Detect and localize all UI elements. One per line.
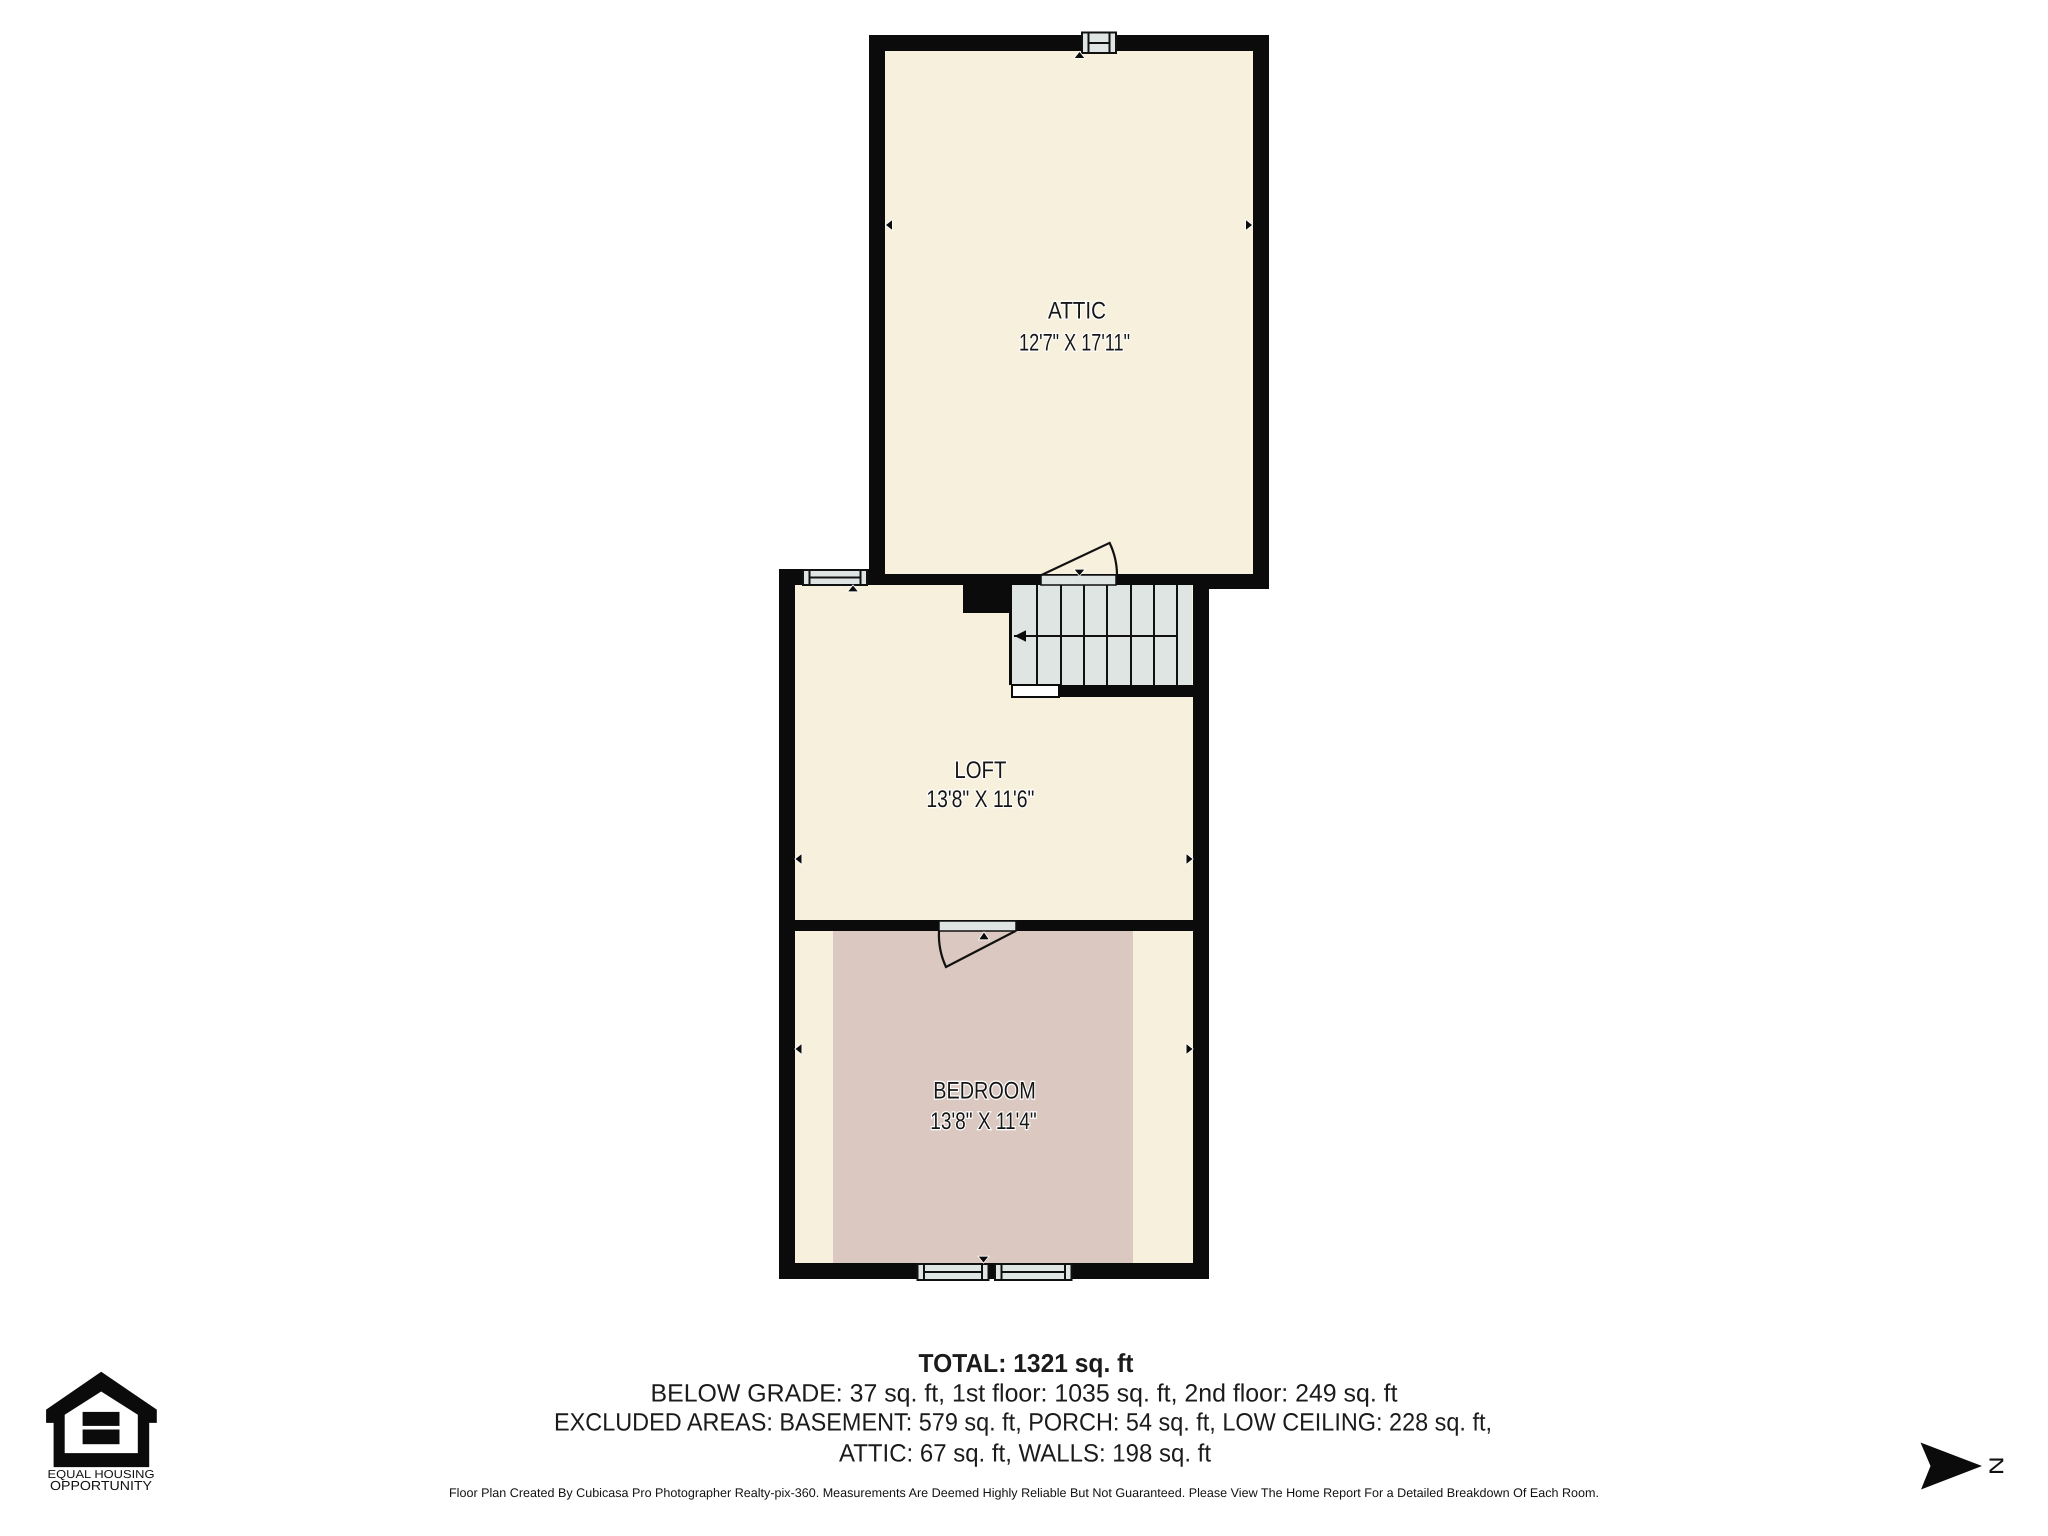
svg-text:OPPORTUNITY: OPPORTUNITY [50, 1478, 152, 1493]
svg-text:TOTAL: 1321 sq. ft: TOTAL: 1321 sq. ft [919, 1348, 1134, 1378]
svg-text:Floor Plan Created By Cubicasa: Floor Plan Created By Cubicasa Pro Photo… [449, 1486, 1599, 1500]
svg-text:BELOW GRADE: 37 sq. ft, 1st fl: BELOW GRADE: 37 sq. ft, 1st floor: 1035 … [651, 1379, 1398, 1407]
svg-text:LOFT: LOFT [954, 757, 1006, 784]
svg-text:EXCLUDED AREAS: BASEMENT: 579: EXCLUDED AREAS: BASEMENT: 579 sq. ft, PO… [554, 1408, 1492, 1436]
svg-text:ATTIC: ATTIC [1048, 298, 1106, 325]
svg-text:13'8" X 11'4": 13'8" X 11'4" [930, 1108, 1036, 1135]
svg-text:ATTIC: 67 sq. ft, WALLS: 198 s: ATTIC: 67 sq. ft, WALLS: 198 sq. ft [839, 1439, 1211, 1467]
svg-text:12'7" X 17'11": 12'7" X 17'11" [1019, 330, 1130, 357]
svg-text:BEDROOM: BEDROOM [933, 1078, 1036, 1105]
svg-text:N: N [1984, 1456, 2006, 1475]
svg-text:13'8" X 11'6": 13'8" X 11'6" [926, 786, 1034, 813]
